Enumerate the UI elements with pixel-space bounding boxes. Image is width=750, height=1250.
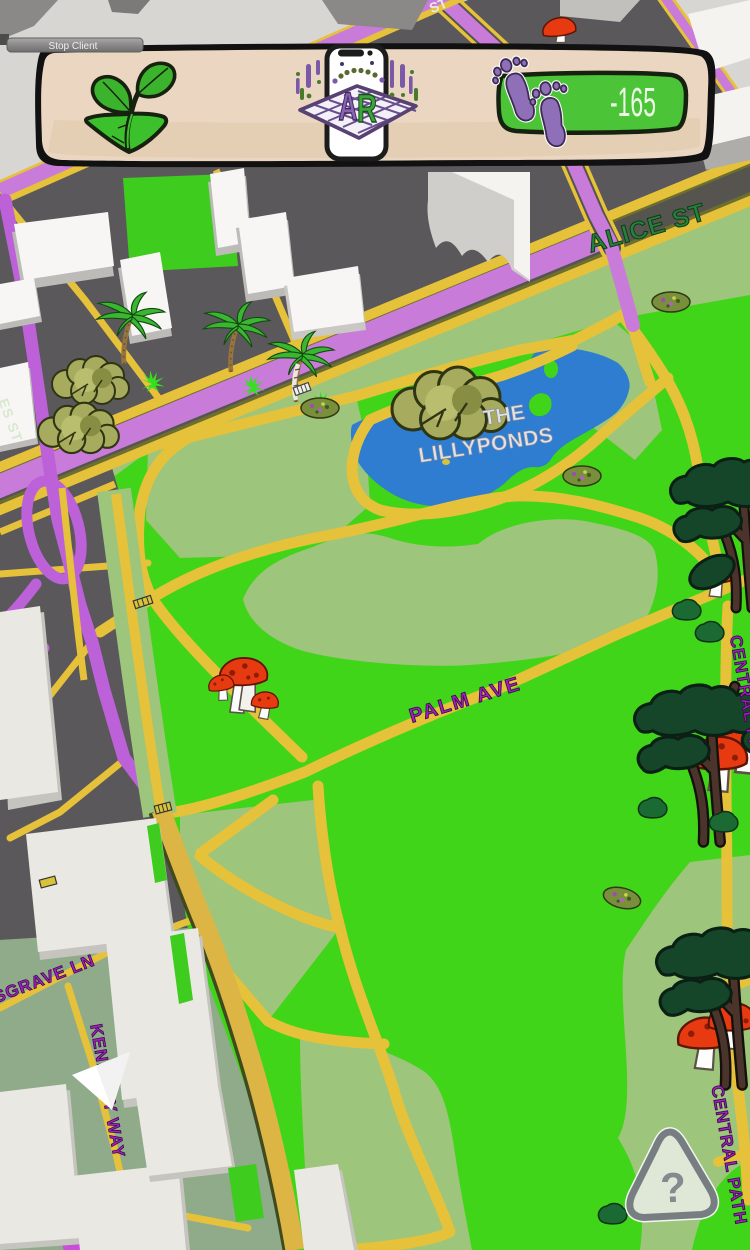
svg-text:-165: -165 [610,79,656,125]
svg-text:?: ? [659,1163,687,1211]
svg-text:A: A [339,85,358,129]
svg-text:Stop Client: Stop Client [49,41,98,52]
svg-text:R: R [357,87,377,131]
